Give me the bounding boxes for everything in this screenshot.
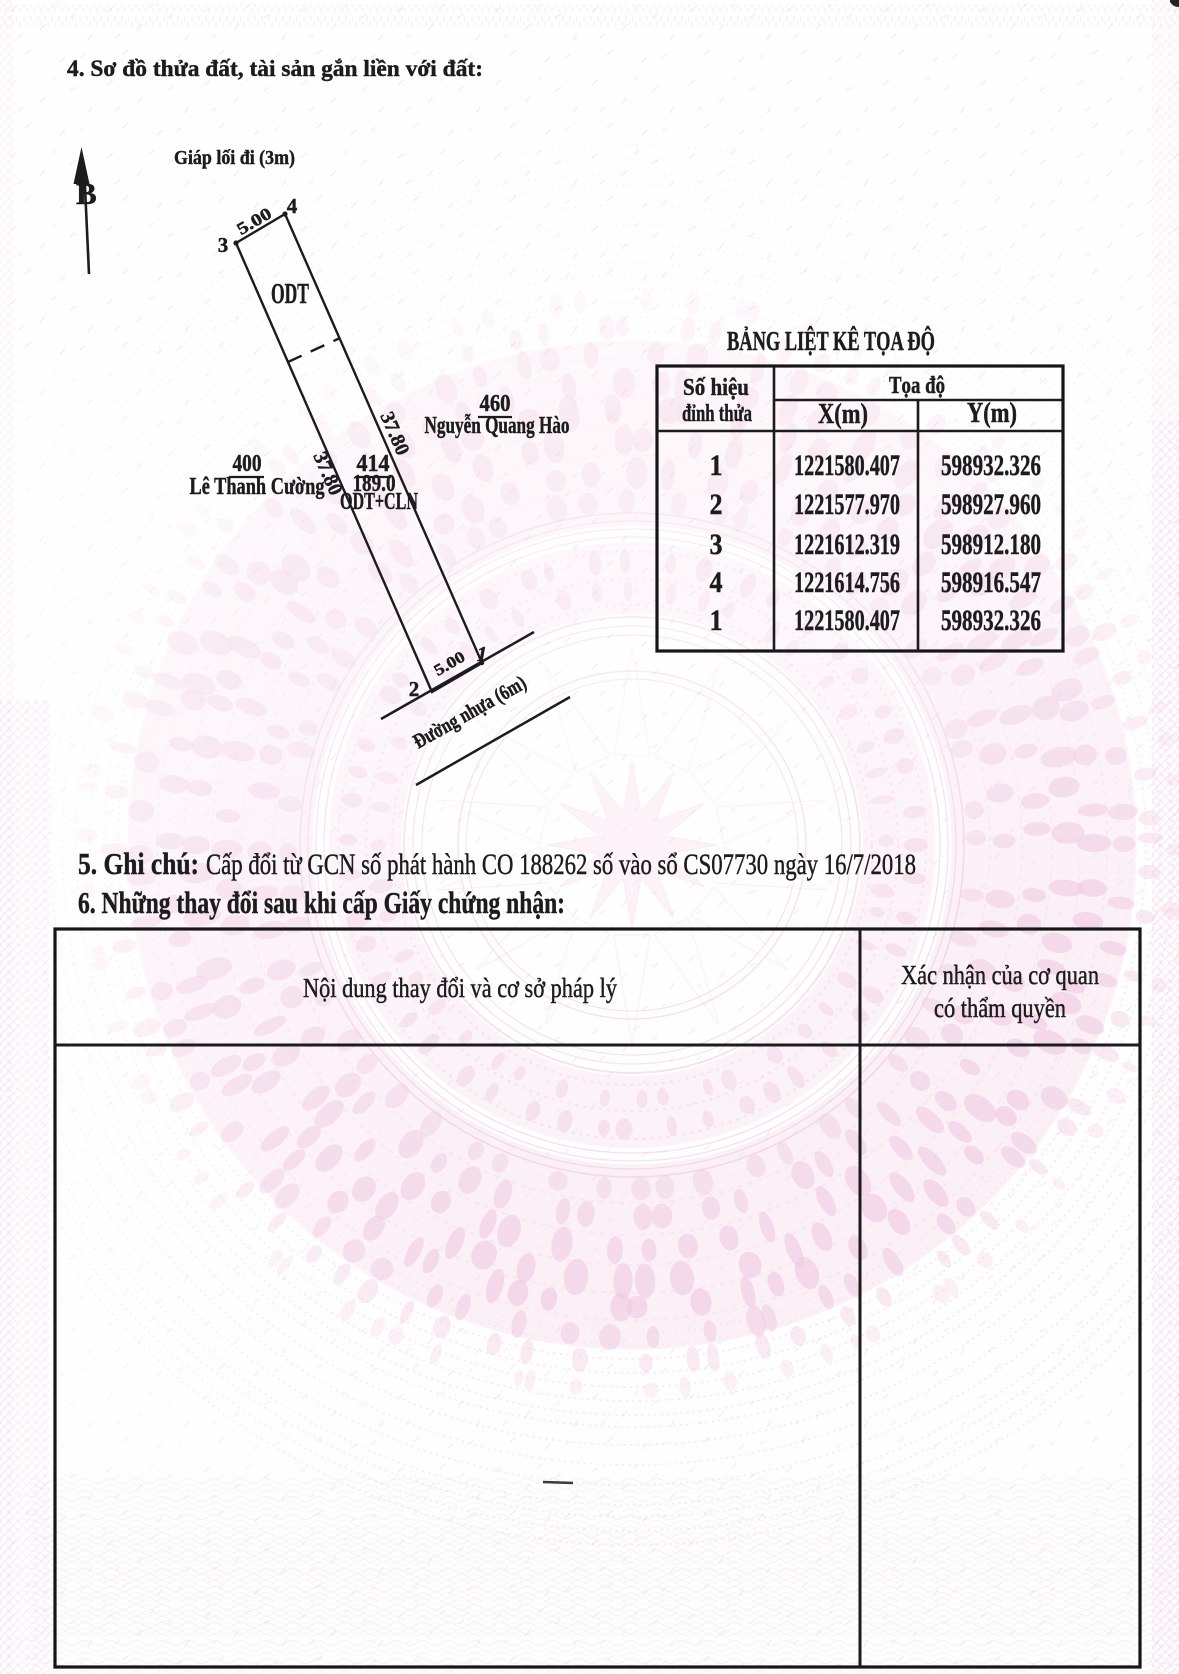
svg-text:4. Sơ đồ thửa đất, tài sản gắn: 4. Sơ đồ thửa đất, tài sản gắn liền với …	[67, 56, 483, 81]
svg-text:1221577.970: 1221577.970	[794, 488, 900, 521]
svg-text:4: 4	[287, 194, 298, 218]
svg-text:598932.326: 598932.326	[941, 604, 1041, 637]
svg-text:có thẩm quyền: có thẩm quyền	[934, 993, 1066, 1023]
svg-text:4: 4	[710, 566, 723, 599]
svg-text:2: 2	[710, 488, 723, 521]
svg-text:598916.547: 598916.547	[941, 566, 1041, 599]
svg-text:598927.960: 598927.960	[941, 488, 1041, 521]
svg-text:1221580.407: 1221580.407	[794, 604, 900, 637]
svg-text:Giáp lối đi (3m): Giáp lối đi (3m)	[174, 147, 295, 169]
svg-text:1221614.756: 1221614.756	[794, 566, 900, 599]
svg-text:598912.180: 598912.180	[941, 528, 1041, 561]
svg-text:B: B	[76, 176, 97, 211]
svg-text:Nguyễn Quang Hào: Nguyễn Quang Hào	[425, 413, 570, 439]
svg-text:1221580.407: 1221580.407	[794, 449, 900, 482]
svg-text:Tọa độ: Tọa độ	[889, 373, 945, 399]
svg-text:Nội dung thay đổi và cơ sở phá: Nội dung thay đổi và cơ sở pháp lý	[303, 973, 617, 1003]
svg-text:Xác nhận của cơ quan: Xác nhận của cơ quan	[901, 960, 1099, 990]
svg-text:1: 1	[710, 604, 723, 637]
svg-text:1: 1	[710, 449, 723, 482]
svg-text:3: 3	[710, 528, 723, 561]
svg-text:Lê Thanh Cường: Lê Thanh Cường	[190, 474, 325, 500]
svg-text:ODT+CLN: ODT+CLN	[340, 489, 418, 515]
svg-text:Cấp đổi từ GCN số phát hành CO: Cấp đổi từ GCN số phát hành CO 188262 số…	[206, 848, 916, 881]
svg-text:X(m): X(m)	[818, 399, 868, 430]
svg-text:5. Ghi chú:: 5. Ghi chú:	[78, 846, 199, 881]
svg-text:đỉnh thửa: đỉnh thửa	[682, 401, 752, 427]
svg-text:ODT: ODT	[271, 279, 309, 310]
svg-text:3: 3	[218, 233, 229, 257]
svg-text:BẢNG LIỆT KÊ TỌA ĐỘ: BẢNG LIỆT KÊ TỌA ĐỘ	[727, 326, 935, 356]
svg-text:Y(m): Y(m)	[967, 398, 1017, 429]
svg-text:6. Những thay đổi sau khi cấp: 6. Những thay đổi sau khi cấp Giấy chứng…	[78, 885, 565, 920]
svg-text:598932.326: 598932.326	[941, 449, 1041, 482]
svg-text:1221612.319: 1221612.319	[794, 528, 900, 561]
svg-text:Số hiệu: Số hiệu	[683, 375, 749, 401]
